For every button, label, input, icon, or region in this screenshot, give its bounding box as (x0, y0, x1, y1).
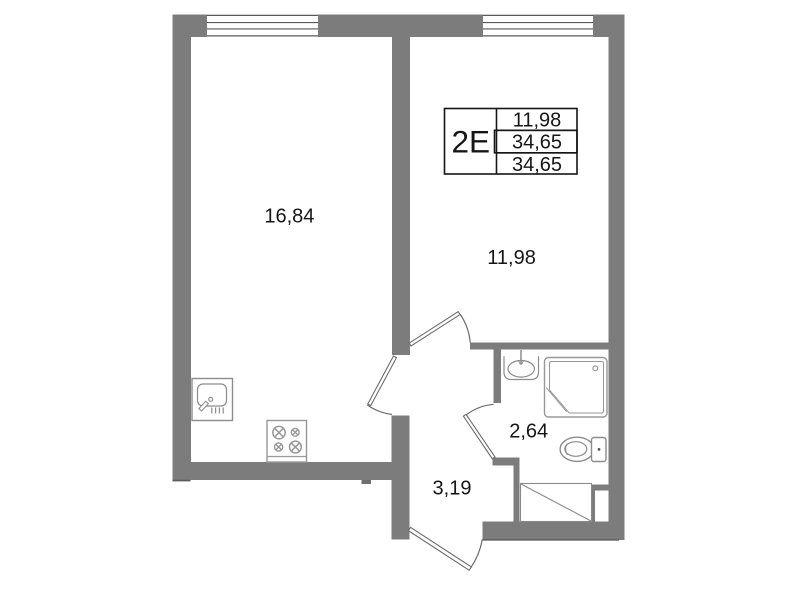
svg-text:34,65: 34,65 (512, 132, 562, 154)
svg-text:11,98: 11,98 (487, 247, 536, 269)
svg-text:16,84: 16,84 (264, 206, 314, 228)
svg-text:2E: 2E (452, 123, 491, 159)
svg-text:11,98: 11,98 (513, 110, 562, 132)
svg-text:2,64: 2,64 (509, 421, 548, 443)
svg-text:34,65: 34,65 (512, 154, 562, 176)
svg-text:3,19: 3,19 (433, 478, 472, 500)
